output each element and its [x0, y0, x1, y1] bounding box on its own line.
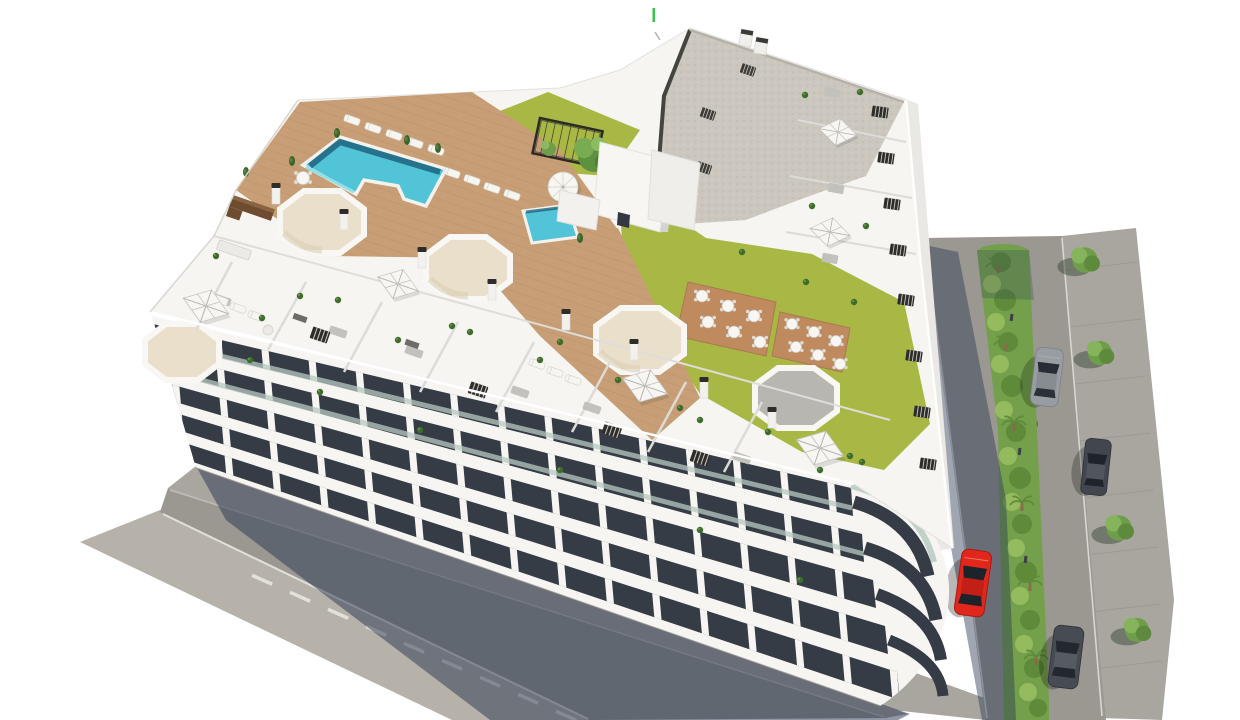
- green-tick-artifact: [653, 8, 656, 22]
- skylight-octagon-open: [755, 368, 837, 428]
- median-shadow: [977, 250, 1034, 300]
- skylight-octagon: [145, 324, 219, 380]
- deck-dining-set: [294, 171, 312, 185]
- render-canvas: Aerial 3D architectural rendering of a m…: [0, 0, 1240, 720]
- round-ottoman: [263, 325, 273, 335]
- architectural-render: Aerial 3D architectural rendering of a m…: [0, 0, 1240, 720]
